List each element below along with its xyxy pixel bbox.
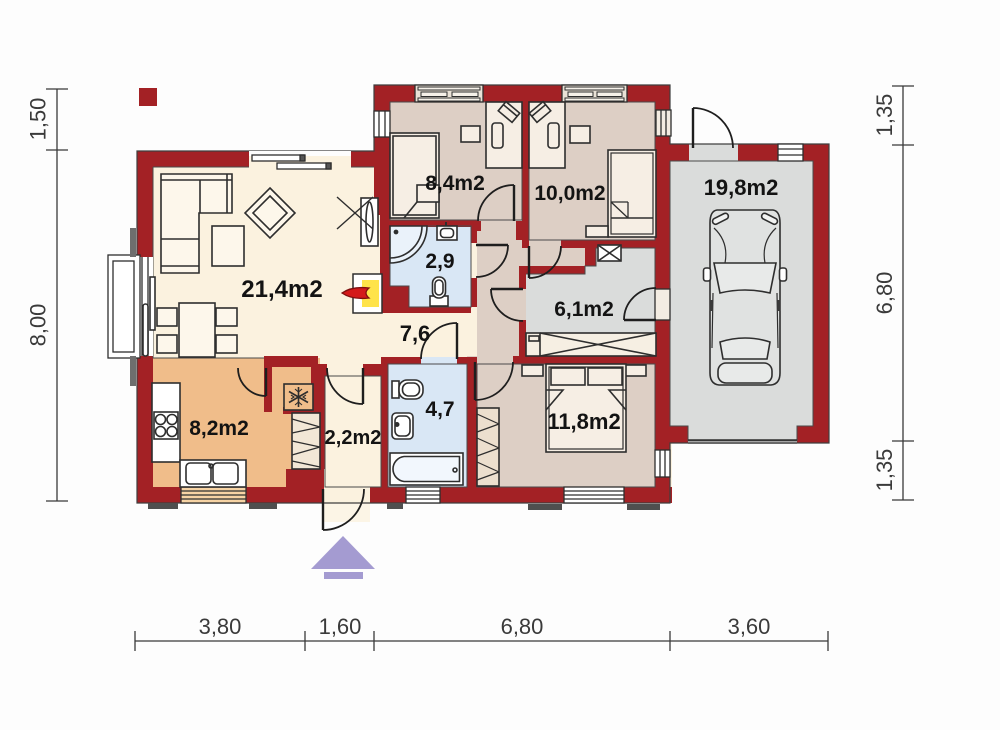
svg-text:3,60: 3,60 — [728, 614, 771, 639]
svg-text:10,0m2: 10,0m2 — [534, 182, 605, 205]
svg-text:21,4m2: 21,4m2 — [241, 276, 322, 303]
svg-text:1,35: 1,35 — [872, 94, 897, 137]
svg-text:8,2m2: 8,2m2 — [189, 417, 249, 440]
svg-text:8,00: 8,00 — [26, 304, 51, 347]
svg-text:2,9: 2,9 — [425, 250, 454, 273]
svg-text:8,4m2: 8,4m2 — [425, 172, 485, 195]
svg-text:6,1m2: 6,1m2 — [554, 298, 614, 321]
svg-text:19,8m2: 19,8m2 — [704, 175, 779, 200]
svg-text:7,6: 7,6 — [400, 321, 431, 346]
svg-text:11,8m2: 11,8m2 — [547, 409, 620, 434]
svg-text:1,50: 1,50 — [26, 98, 51, 141]
svg-text:6,80: 6,80 — [872, 272, 897, 315]
svg-text:1,35: 1,35 — [872, 449, 897, 492]
svg-text:6,80: 6,80 — [501, 614, 544, 639]
svg-text:2,2m2: 2,2m2 — [325, 427, 382, 449]
svg-text:4,7: 4,7 — [425, 398, 454, 421]
svg-text:1,60: 1,60 — [319, 614, 362, 639]
svg-text:3,80: 3,80 — [199, 614, 242, 639]
